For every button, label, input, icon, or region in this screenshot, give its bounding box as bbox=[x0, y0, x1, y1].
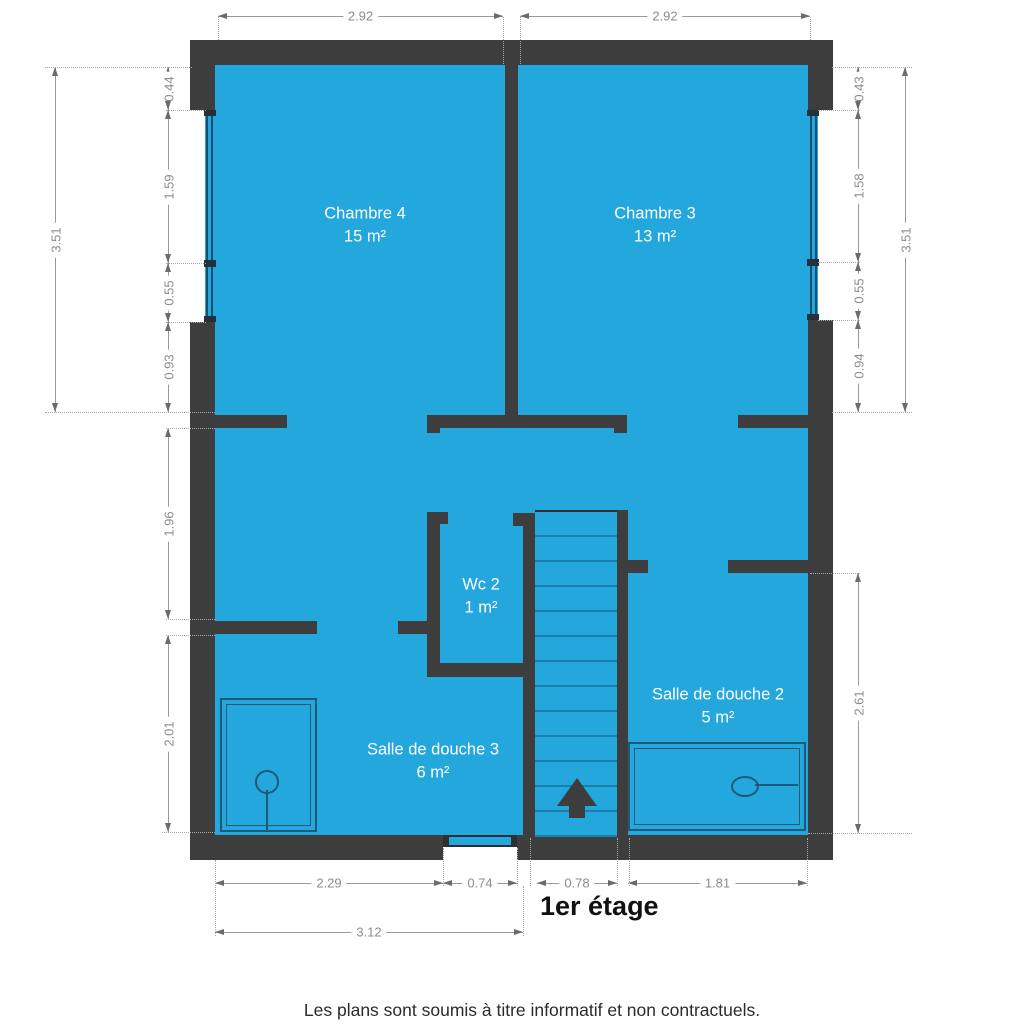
room-label-chambre3: Chambre 3 13 m² bbox=[614, 203, 696, 250]
wall-left-upper bbox=[190, 65, 215, 110]
extension-line bbox=[166, 263, 206, 264]
extension-line bbox=[166, 619, 215, 620]
stairs-up-arrow-stem bbox=[569, 803, 585, 818]
wall-right-lower bbox=[808, 320, 833, 835]
extension-line bbox=[166, 635, 215, 636]
dimension-right-seg1: 0.43 bbox=[858, 67, 859, 110]
wall-wc-left bbox=[427, 512, 440, 663]
extension-line bbox=[818, 110, 860, 111]
floor-plan-page: Chambre 4 15 m² Chambre 3 13 m² Wc 2 1 m… bbox=[0, 0, 1024, 1024]
extension-line bbox=[807, 838, 808, 886]
dimension-left-seg6: 2.01 bbox=[168, 635, 169, 832]
extension-line bbox=[818, 262, 860, 263]
room-area: 13 m² bbox=[614, 226, 696, 249]
extension-line bbox=[45, 67, 192, 68]
window-left-glass-line bbox=[206, 110, 208, 322]
wall-jamb bbox=[513, 513, 535, 526]
shower-drain-icon bbox=[731, 776, 759, 797]
extension-line bbox=[808, 833, 912, 834]
room-label-wc2: Wc 2 1 m² bbox=[462, 574, 500, 621]
dimension-left-seg4: 0.93 bbox=[168, 322, 169, 412]
wall-shower2-top bbox=[728, 560, 808, 573]
extension-line bbox=[215, 860, 216, 936]
dimension-bottom-seg3: 0.78 bbox=[537, 883, 617, 884]
extension-line bbox=[443, 848, 444, 886]
dimension-right-seg4: 0.94 bbox=[858, 320, 859, 412]
window-right-glass-line bbox=[810, 110, 812, 320]
room-name: Chambre 4 bbox=[324, 203, 406, 226]
dimension-left-seg5: 1.96 bbox=[168, 428, 169, 619]
extension-line bbox=[523, 886, 524, 936]
shower-drain-line bbox=[755, 784, 798, 786]
extension-line bbox=[818, 320, 860, 321]
extension-line bbox=[810, 573, 860, 574]
extension-line bbox=[832, 67, 912, 68]
wall-jamb bbox=[628, 560, 648, 573]
wall-bedroom-divider bbox=[505, 65, 518, 418]
room-label-salle-de-douche-2: Salle de douche 2 5 m² bbox=[652, 684, 784, 731]
extension-line bbox=[166, 110, 206, 111]
extension-line bbox=[520, 17, 521, 64]
wall-stair-left bbox=[523, 513, 535, 835]
extension-line bbox=[617, 838, 618, 886]
wall-hall-left-stub bbox=[215, 415, 287, 428]
dimension-bottom-seg4: 1.81 bbox=[628, 883, 807, 884]
room-name: Chambre 3 bbox=[614, 203, 696, 226]
window-right-glass-line bbox=[815, 110, 817, 320]
extension-line bbox=[218, 17, 219, 40]
floor-title: 1er étage bbox=[540, 891, 659, 922]
wall-shower3-top-right bbox=[398, 621, 427, 634]
extension-line bbox=[166, 322, 206, 323]
room-name: Salle de douche 3 bbox=[367, 739, 499, 762]
dimension-left-seg1: 0.44 bbox=[168, 67, 169, 110]
dimension-right-seg5: 2.61 bbox=[858, 573, 859, 833]
extension-line bbox=[530, 838, 531, 886]
room-area: 1 m² bbox=[462, 597, 500, 620]
dimension-bottom-seg1: 2.29 bbox=[215, 883, 443, 884]
disclaimer-text: Les plans sont soumis à titre informatif… bbox=[0, 1000, 1024, 1021]
dimension-left-total: 3.51 bbox=[55, 67, 56, 412]
wall-bottom-right bbox=[517, 835, 833, 860]
wall-wc-bottom bbox=[427, 663, 530, 677]
room-area: 6 m² bbox=[367, 762, 499, 785]
extension-line bbox=[810, 17, 811, 40]
extension-line bbox=[629, 838, 630, 886]
dimension-left-seg3: 0.55 bbox=[168, 263, 169, 322]
room-name: Salle de douche 2 bbox=[652, 684, 784, 707]
extension-line bbox=[503, 17, 504, 64]
extension-line bbox=[517, 848, 518, 886]
dimension-top-left: 2.92 bbox=[218, 16, 503, 17]
wall-right-upper bbox=[808, 65, 833, 110]
wall-left-lower bbox=[190, 322, 215, 835]
room-label-chambre4: Chambre 4 15 m² bbox=[324, 203, 406, 250]
dimension-right-seg3: 0.55 bbox=[858, 262, 859, 320]
wall-jamb bbox=[427, 428, 440, 433]
room-area: 5 m² bbox=[652, 707, 784, 730]
window-left-opening bbox=[190, 110, 205, 322]
door-threshold bbox=[443, 835, 517, 847]
dimension-right-total: 3.51 bbox=[905, 67, 906, 412]
dimension-top-right: 2.92 bbox=[520, 16, 810, 17]
wall-stair-right bbox=[617, 510, 628, 835]
wall-top bbox=[190, 40, 833, 65]
room-label-salle-de-douche-3: Salle de douche 3 6 m² bbox=[367, 739, 499, 786]
dimension-right-seg2: 1.58 bbox=[858, 110, 859, 262]
extension-line bbox=[162, 832, 215, 833]
room-area: 15 m² bbox=[324, 226, 406, 249]
extension-line bbox=[45, 412, 215, 413]
stairs-up-arrow-icon bbox=[557, 778, 597, 806]
wall-hall-center bbox=[427, 415, 627, 428]
dimension-bottom-total: 3.12 bbox=[215, 932, 523, 933]
window-right-opening bbox=[818, 110, 833, 320]
wall-hall-right-stub bbox=[738, 415, 808, 428]
wall-jamb bbox=[614, 428, 627, 433]
extension-line bbox=[166, 428, 215, 429]
extension-line bbox=[832, 412, 912, 413]
dimension-left-seg2: 1.59 bbox=[168, 110, 169, 263]
dimension-bottom-seg2: 0.74 bbox=[443, 883, 517, 884]
shower-tray-2 bbox=[628, 742, 806, 831]
room-name: Wc 2 bbox=[462, 574, 500, 597]
wall-bottom-left bbox=[190, 835, 443, 860]
wall-shower3-top bbox=[215, 621, 317, 634]
wall-jamb bbox=[427, 512, 448, 524]
shower-tray-3 bbox=[220, 698, 317, 832]
window-left-glass-line bbox=[211, 110, 213, 322]
shower-drain-line bbox=[266, 790, 268, 830]
